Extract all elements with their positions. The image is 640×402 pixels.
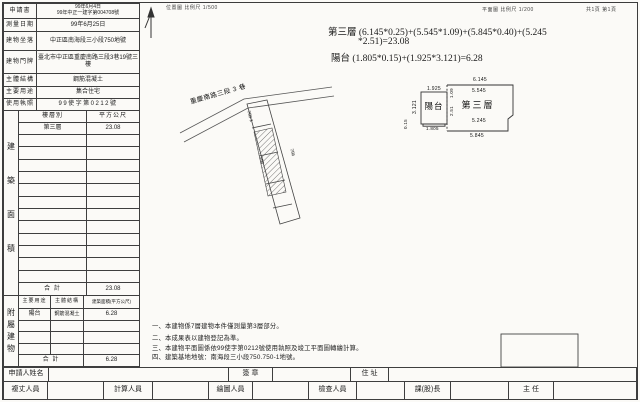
note-line: 四、建築基地地號：南海段三小段750.750-1地號。 — [152, 352, 299, 361]
building-address: 臺北市中正區重慶南路三段3巷19號三樓 — [36, 51, 140, 73]
area-empty-row — [18, 234, 140, 246]
annex-header-row: 主要用途 主體結構 建築面積(平方公尺) — [18, 296, 140, 309]
field-label: 測量日期 — [3, 19, 36, 31]
field-label: 主體結構 — [3, 74, 36, 86]
area-empty-row — [18, 197, 140, 209]
plan-scale-label: 平面圖 比例尺 1/200 — [482, 6, 534, 13]
area-empty-row — [18, 258, 140, 271]
table-row: 建物門牌 臺北市中正區重慶南路三段3巷19號三樓 — [3, 51, 140, 74]
staff-sign-field — [356, 382, 404, 399]
note-line: 三、本建物平面圖係依99使字第0212號使用執照及竣工平面圖轉繪計算。 — [152, 343, 363, 352]
location-scale-label: 位置圖 比例尺 1/500 — [166, 4, 218, 11]
floor-area-value: 23.08 — [86, 123, 140, 134]
staff-label-drafting: 繪圖人員 — [208, 382, 252, 399]
area-formula-line1: 第三層 (6.145*0.25)+(5.545*1.09)+(5.845*0.4… — [328, 24, 547, 38]
dim-bottom: 5.845 — [454, 133, 500, 139]
total-label: 合 計 — [18, 283, 86, 295]
staff-row: 複丈人員 計算人員 繪圖人員 檢查人員 課(股)長 主 任 — [3, 382, 637, 400]
area-empty-row — [18, 246, 140, 258]
application-number: 99年中正一建字第004708號 — [57, 11, 119, 17]
staff-label-inspection: 檢查人員 — [308, 382, 356, 399]
field-label: 使用執照 — [3, 99, 36, 110]
address-label: 住 址 — [350, 368, 388, 381]
area-formula-line2: *2.51)=23.08 — [358, 37, 409, 47]
annex-area-value: 6.28 — [83, 309, 140, 320]
area-total-row: 合 計 23.08 — [18, 283, 140, 296]
area-header-row: 樓層別 平方公尺 — [18, 111, 140, 123]
staff-label-director: 主 任 — [508, 382, 553, 399]
balcony-label: 陽台 — [419, 100, 449, 112]
survey-document: 位置圖 比例尺 1/500 平面圖 比例尺 1/200 共1頁 第1頁 第三層 … — [0, 0, 640, 402]
field-label: 主要用途 — [3, 87, 36, 98]
column-header-use: 主要用途 — [18, 296, 50, 308]
field-label: 申請書 — [3, 4, 36, 18]
dim-strip: 0.15 — [403, 119, 408, 129]
annex-empty-row — [18, 344, 140, 355]
survey-date: 99年6月25日 — [36, 19, 140, 31]
area-formula-line3: 陽台 (1.805*0.15)+(1.925*3.121)=6.28 — [331, 50, 483, 64]
dim-seg1: 1.09 — [449, 88, 454, 98]
table-row: 申請書 99年6月4日 99年中正一建字第004708號 — [3, 3, 140, 19]
staff-label-survey: 複丈人員 — [3, 382, 47, 399]
total-label: 合 計 — [18, 355, 83, 366]
annex-use: 陽台 — [18, 309, 50, 320]
table-row: 建物坐落 中正區南海段三小段750地號 — [3, 32, 140, 51]
applicant-name-field — [48, 368, 228, 381]
applicant-label: 申請人姓名 — [3, 368, 48, 381]
seal-label: 簽 章 — [228, 368, 272, 381]
dim-seg2: 2.51 — [449, 106, 454, 116]
stamp-box — [501, 334, 578, 367]
area-empty-row — [18, 209, 140, 221]
dim-top: 6.145 — [460, 77, 500, 83]
dim-inner-top: 5.545 — [456, 88, 502, 94]
table-row: 使用執照 99使字第0212號 — [3, 99, 140, 111]
note-line: 二、本成果表以建物登記為準。 — [152, 333, 243, 342]
column-header-sqm: 平方公尺 — [86, 111, 140, 122]
column-header-structure: 主體結構 — [50, 296, 83, 308]
field-value: 99年6月4日 99年中正一建字第004708號 — [36, 4, 140, 18]
section-label-building-area: 建築面積 — [3, 111, 18, 296]
annex-total-value: 6.28 — [83, 355, 140, 366]
staff-sign-field — [553, 382, 637, 399]
dim-inner-bottom: 5.245 — [456, 118, 502, 124]
address-field — [388, 368, 637, 381]
annex-structure: 鋼筋混凝土 — [50, 309, 83, 320]
room-label-third-floor: 第三層 — [450, 98, 506, 111]
staff-label-calculation: 計算人員 — [103, 382, 152, 399]
staff-sign-field — [252, 382, 308, 399]
area-empty-row — [18, 135, 140, 147]
area-empty-row — [18, 172, 140, 184]
building-location: 中正區南海段三小段750地號 — [36, 32, 140, 50]
use-permit-number: 99使字第0212號 — [36, 99, 140, 110]
area-empty-row — [18, 221, 140, 234]
annex-empty-row — [18, 321, 140, 332]
note-line: 一、本建物係7層建物本件僅測量第3層部分。 — [152, 321, 283, 330]
floor-name: 第三層 — [18, 123, 86, 134]
staff-sign-field — [450, 382, 508, 399]
column-header-annex-area: 建築面積(平方公尺) — [83, 296, 140, 308]
area-empty-row — [18, 147, 140, 160]
table-row: 主要用途 集合住宅 — [3, 87, 140, 99]
page-info-label: 共1頁 第1頁 — [586, 6, 616, 13]
section-label-annex: 附屬建物 — [3, 296, 18, 367]
staff-sign-field — [47, 382, 103, 399]
table-row: 主體結構 鋼筋混凝土 — [3, 74, 140, 87]
dim-balcony-bottom: 1.805 — [426, 126, 439, 131]
field-label: 建物門牌 — [3, 51, 36, 73]
annex-data-row: 陽台 鋼筋混凝土 6.28 — [18, 309, 140, 321]
annex-empty-row — [18, 332, 140, 344]
dim-balcony-left: 3.121 — [412, 100, 418, 114]
north-arrow-icon — [145, 8, 154, 38]
table-row: 測量日期 99年6月25日 — [3, 19, 140, 32]
staff-sign-field — [152, 382, 208, 399]
dim-balcony-top: 1.925 — [420, 86, 448, 92]
staff-label-section-chief: 課(股)長 — [404, 382, 450, 399]
field-label: 建物坐落 — [3, 32, 36, 50]
column-header-floor: 樓層別 — [18, 111, 86, 122]
area-empty-row — [18, 160, 140, 172]
area-empty-row — [18, 271, 140, 283]
applicant-row: 申請人姓名 簽 章 住 址 — [3, 367, 637, 382]
area-empty-row — [18, 184, 140, 197]
total-area-value: 23.08 — [86, 283, 140, 295]
annex-total-row: 合 計 6.28 — [18, 355, 140, 367]
seal-field — [272, 368, 350, 381]
structure-type: 鋼筋混凝土 — [36, 74, 140, 86]
main-use: 集合住宅 — [36, 87, 140, 98]
area-data-row: 第三層 23.08 — [18, 123, 140, 135]
